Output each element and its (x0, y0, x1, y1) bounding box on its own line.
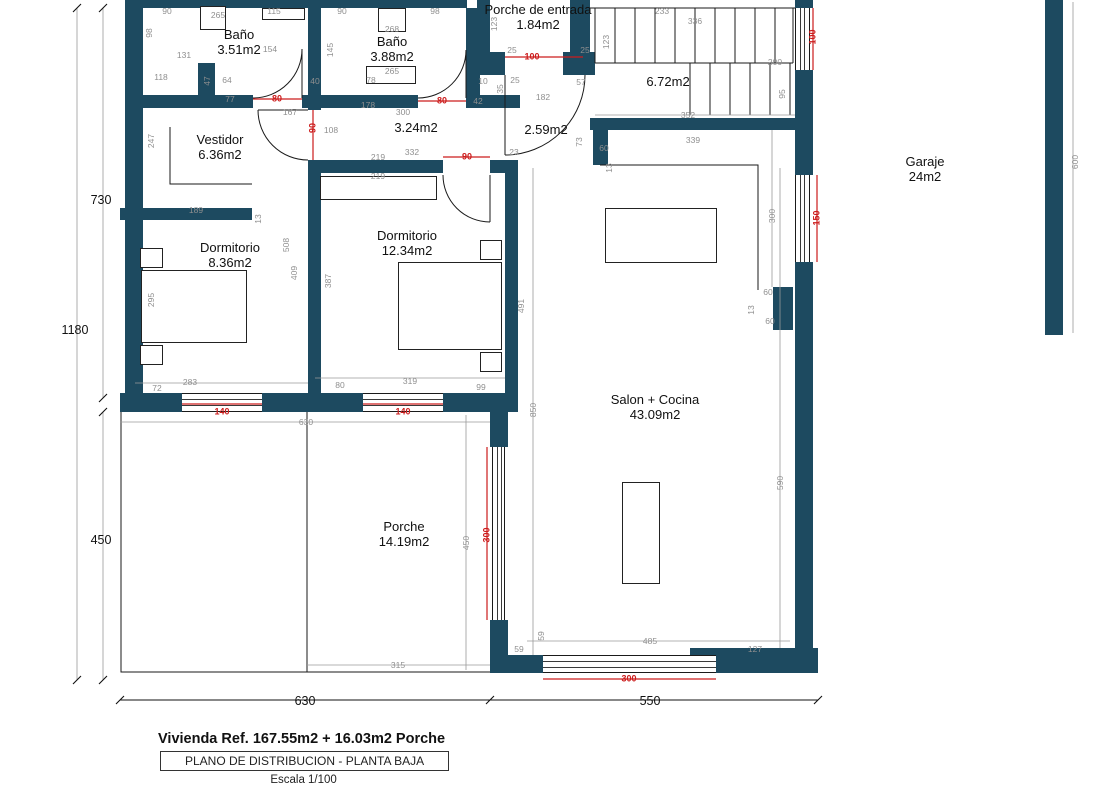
dimension-label: 189 (189, 206, 203, 215)
room-area: 2.59m2 (524, 122, 567, 137)
wall-vestidor-south (120, 208, 252, 220)
dimension-label: 300 (768, 209, 777, 223)
dimension-label: 80 (437, 97, 447, 106)
dimension-label: 118 (154, 73, 168, 82)
dimension-label: 90 (309, 123, 318, 133)
door-arc-bath2 (418, 50, 466, 98)
nightstand (140, 248, 163, 268)
dimension-label: 730 (91, 194, 112, 207)
dimension-label: 80 (272, 95, 282, 104)
plan-title: Vivienda Ref. 167.55m2 + 16.03m2 Porche (158, 731, 449, 747)
window-garage-mid (795, 175, 810, 262)
room-name: Salon + Cocina (611, 392, 700, 407)
dimension-label: 352 (681, 111, 695, 120)
room-label: Garaje 24m2 (905, 154, 944, 184)
wall-porch-corner-top (490, 412, 508, 447)
dimension-label: 491 (517, 299, 526, 313)
room-name: Vestidor (197, 132, 244, 147)
room-label: Dormitorio 12.34m2 (377, 228, 437, 258)
plan-scale: Escala 1/100 (158, 774, 449, 785)
wall-right-lower (795, 262, 813, 655)
dimension-label: 42 (473, 97, 482, 106)
room-label: Vestidor 6.36m2 (197, 132, 244, 162)
nightstand (480, 240, 502, 260)
wall-south-band-c (443, 393, 508, 412)
dimension-label: 77 (225, 95, 234, 104)
wall-right-top-stub (795, 0, 813, 8)
dimension-label: 90 (337, 7, 346, 16)
dimension-label: 131 (177, 51, 191, 60)
dimension-label: 127 (748, 645, 762, 654)
porch-outline (121, 412, 490, 672)
dimension-label: 64 (222, 76, 231, 85)
room-name: Baño (217, 27, 260, 42)
dimension-label: 57 (576, 78, 585, 87)
dimension-label: 319 (403, 377, 417, 386)
dimension-label: 178 (361, 101, 375, 110)
room-label: Baño 3.51m2 (217, 27, 260, 57)
room-name: Porche de entrada (485, 2, 592, 17)
dimension-label: 78 (366, 76, 375, 85)
dimension-label: 13 (254, 214, 263, 223)
dimension-label: 295 (147, 293, 156, 307)
dimension-label: 150 (813, 210, 822, 225)
dimension-label: 850 (529, 403, 538, 417)
room-area: 6.36m2 (197, 147, 244, 162)
door-arc-dorm2 (443, 175, 490, 222)
dimension-label: 13 (605, 163, 614, 172)
room-label: Salon + Cocina 43.09m2 (611, 392, 700, 422)
dimension-label: 167 (283, 108, 297, 117)
dimension-label: 387 (324, 274, 333, 288)
dimension-label: 100 (524, 53, 539, 62)
window-salon-south (543, 655, 716, 673)
dimension-label: 200 (768, 58, 782, 67)
room-area: 1.84m2 (485, 17, 592, 32)
nightstand (480, 352, 502, 372)
dimension-label: 60 (599, 144, 608, 153)
dim-lines-black (73, 4, 822, 704)
nightstand (140, 345, 163, 365)
dimension-label: 140 (395, 408, 410, 417)
dimension-label: 154 (263, 45, 277, 54)
room-label: 3.24m2 (394, 120, 437, 135)
dimension-label: 332 (405, 148, 419, 157)
dimension-label: 47 (203, 76, 212, 85)
dimension-label: 145 (326, 43, 335, 57)
dimension-label: 182 (536, 93, 550, 102)
room-area: 24m2 (905, 169, 944, 184)
dimension-label: 265 (385, 67, 399, 76)
wall-south-band-b (262, 393, 363, 412)
dimension-label: 508 (282, 238, 291, 252)
wall-bottom-b (716, 655, 818, 673)
room-name: Dormitorio (200, 240, 260, 255)
dimension-label: 233 (655, 7, 669, 16)
wall-garage-far (1045, 0, 1063, 335)
room-area: 43.09m2 (611, 407, 700, 422)
dimension-label: 450 (91, 534, 112, 547)
dimension-label: 25 (507, 46, 516, 55)
sofa (622, 482, 660, 584)
room-label: 2.59m2 (524, 122, 567, 137)
dimension-label: 123 (602, 35, 611, 49)
dimension-label: 10 (478, 77, 487, 86)
dimension-label: 108 (324, 126, 338, 135)
room-area: 3.51m2 (217, 42, 260, 57)
room-name: Dormitorio (377, 228, 437, 243)
dimension-label: 25 (580, 46, 589, 55)
room-name: Porche (379, 519, 430, 534)
wall-right-upper (795, 70, 813, 175)
dimension-label: 59 (537, 631, 546, 640)
room-label: Porche 14.19m2 (379, 519, 430, 549)
dimension-label: 265 (211, 11, 225, 20)
dimension-label: 300 (396, 108, 410, 117)
dimension-label: 40 (310, 77, 319, 86)
wall-bottom-a (508, 655, 543, 673)
dimension-label: 60 (765, 317, 774, 326)
wall-under-stairs (590, 118, 795, 130)
dimension-label: 72 (152, 384, 161, 393)
dimension-label: 100 (809, 29, 818, 44)
room-area: 8.36m2 (200, 255, 260, 270)
dimension-label: 550 (640, 695, 661, 708)
title-block: Vivienda Ref. 167.55m2 + 16.03m2 Porche … (158, 731, 449, 785)
dimension-label: 630 (299, 418, 313, 427)
dimension-label: 98 (145, 28, 154, 37)
dimension-label: 95 (778, 89, 787, 98)
wall-front-door-right (563, 52, 595, 75)
dimension-label: 98 (430, 7, 439, 16)
door-arc-vestidor (258, 110, 308, 160)
dimension-label: 90 (462, 153, 472, 162)
dimension-label: 90 (162, 7, 171, 16)
dimension-label: 450 (462, 536, 471, 550)
wall-top (125, 0, 467, 8)
dimension-label: 485 (643, 637, 657, 646)
room-label: Porche de entrada 1.84m2 (485, 2, 592, 32)
plan-subtitle: PLANO DE DISTRIBUCION - PLANTA BAJA (160, 751, 449, 771)
dimension-label: 283 (183, 378, 197, 387)
dimension-label: 80 (335, 381, 344, 390)
room-label: 6.72m2 (646, 74, 689, 89)
dimension-label: 99 (476, 383, 485, 392)
dimension-label: 336 (688, 17, 702, 26)
wall-corridor-north-a (138, 95, 253, 108)
wall-vestidor-east-a (308, 95, 321, 110)
room-area: 3.88m2 (370, 49, 413, 64)
dimension-label: 23 (509, 148, 518, 157)
dimension-label: 115 (267, 7, 281, 16)
dimension-label: 13 (747, 305, 756, 314)
dimension-label: 35 (496, 84, 505, 93)
room-area: 14.19m2 (379, 534, 430, 549)
wall-front-door-left (480, 52, 505, 75)
dimension-label: 315 (391, 661, 405, 670)
wall-dorm2-east (505, 160, 518, 412)
dimension-label: 339 (686, 136, 700, 145)
dimension-label: 25 (510, 76, 519, 85)
room-name: Garaje (905, 154, 944, 169)
room-label: Baño 3.88m2 (370, 34, 413, 64)
dimension-label: 219 (371, 153, 385, 162)
dimension-label: 409 (290, 266, 299, 280)
kitchen-island (605, 208, 717, 263)
wall-pillar (773, 287, 793, 330)
dimension-label: 140 (214, 408, 229, 417)
dimension-label: 300 (621, 675, 636, 684)
floor-plan: Baño 3.51m2 Baño 3.88m2 Porche de entrad… (0, 0, 1107, 785)
dimension-label: 300 (483, 527, 492, 542)
dimension-label: 59 (514, 645, 523, 654)
dimension-label: 219 (371, 172, 385, 181)
window-porch-side (492, 447, 505, 620)
dimension-label: 60 (763, 288, 772, 297)
wall-porch-corner-bottom (490, 620, 508, 673)
dimension-label: 73 (575, 137, 584, 146)
dimension-label: 600 (1071, 155, 1080, 169)
room-area: 6.72m2 (646, 74, 689, 89)
room-name: Baño (370, 34, 413, 49)
dimension-label: 1180 (62, 324, 89, 337)
dimension-label: 590 (776, 476, 785, 490)
room-area: 12.34m2 (377, 243, 437, 258)
dimension-label: 123 (490, 17, 499, 31)
room-area: 3.24m2 (394, 120, 437, 135)
bed-dorm1 (141, 270, 247, 343)
wall-south-band-a (120, 393, 182, 412)
dimension-label: 247 (147, 134, 156, 148)
dimension-label: 630 (295, 695, 316, 708)
dimension-label: 268 (385, 25, 399, 34)
room-label: Dormitorio 8.36m2 (200, 240, 260, 270)
bed-dorm2 (398, 262, 502, 350)
